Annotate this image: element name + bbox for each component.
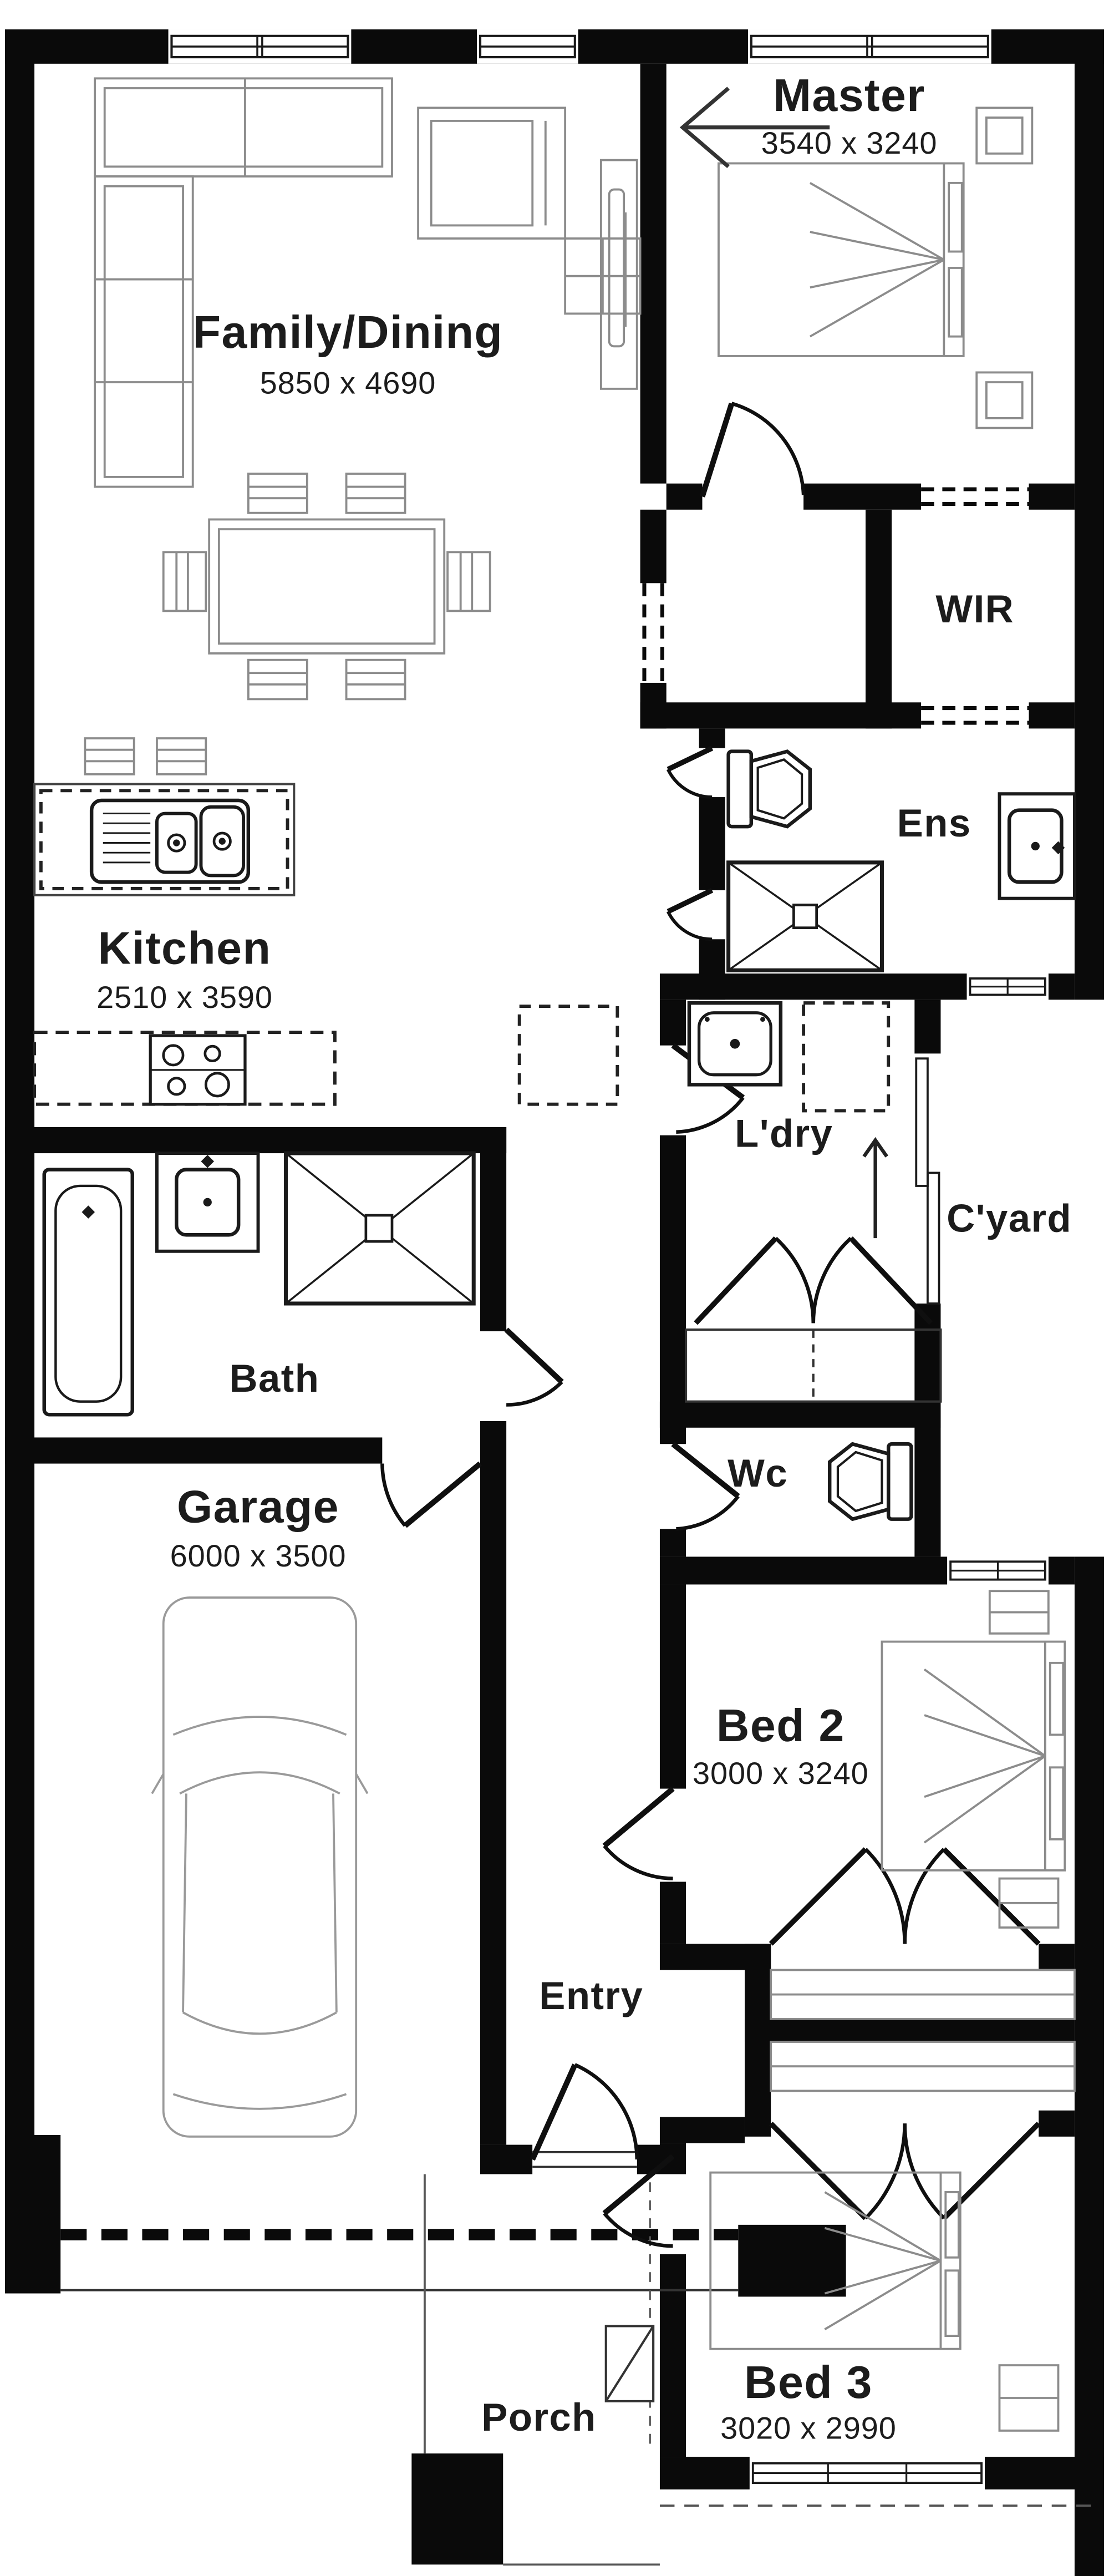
linen-cupboard xyxy=(686,1330,940,1402)
door-robe-bed2-left xyxy=(771,1849,904,1944)
side-table-icon xyxy=(565,239,640,313)
kitchen-island xyxy=(34,784,294,895)
room-label-bed2: Bed 2 xyxy=(716,1700,845,1751)
door-robe-bed2-right xyxy=(905,1849,1039,1944)
external-door-arrow xyxy=(864,1140,887,1238)
room-label-entry: Entry xyxy=(539,1974,643,2017)
room-dims-garage: 6000 x 3500 xyxy=(170,1538,347,1573)
ens-toilet-icon xyxy=(729,752,810,826)
room-label-porch: Porch xyxy=(481,2395,597,2439)
window-ens xyxy=(967,973,1049,1000)
kitchen-sink-icon xyxy=(91,800,248,882)
cooktop-icon xyxy=(150,1036,245,1104)
room-dims-family: 5850 x 4690 xyxy=(260,366,436,400)
door-ldry-cupboard-right xyxy=(813,1238,931,1323)
ens-shower-icon xyxy=(729,863,882,970)
room-label-ens: Ens xyxy=(897,801,971,845)
room-label-master: Master xyxy=(773,70,925,121)
room-label-family: Family/Dining xyxy=(193,307,503,358)
room-label-wir: WIR xyxy=(935,587,1014,631)
armchair-icon xyxy=(418,108,565,239)
floor-plan-page: Family/Dining 5850 x 4690 Master 3540 x … xyxy=(0,0,1109,2576)
door-robe-bed3-right xyxy=(905,2123,1039,2218)
room-dims-kitchen: 2510 x 3590 xyxy=(96,980,273,1015)
window-family-2 xyxy=(477,29,578,64)
front-door-threshold xyxy=(532,2145,637,2174)
stool-icons xyxy=(85,738,206,774)
ens-vanity-icon xyxy=(999,794,1074,898)
door-bed2 xyxy=(604,1789,673,1879)
sliding-door-cyard xyxy=(914,1053,940,1304)
door-bath xyxy=(506,1330,562,1404)
room-label-cyard: C'yard xyxy=(947,1196,1072,1240)
sofa-icon xyxy=(95,78,392,486)
room-label-bath: Bath xyxy=(230,1356,320,1400)
kitchen-bench xyxy=(34,1032,335,1104)
door-robe-bed3-left xyxy=(771,2123,904,2218)
room-label-garage: Garage xyxy=(177,1482,339,1533)
room-dims-master: 3540 x 3240 xyxy=(761,125,938,160)
room-dims-bed3: 3020 x 2990 xyxy=(720,2411,897,2446)
wc-toilet-icon xyxy=(830,1444,911,1519)
door-master xyxy=(703,403,804,496)
bathtub-icon xyxy=(44,1169,133,1414)
door-ldry-cupboard-left xyxy=(696,1238,813,1323)
window-family-1 xyxy=(169,29,352,64)
pantry-dashed xyxy=(520,1006,618,1104)
meter-box-icon xyxy=(606,2326,653,2401)
window-master xyxy=(748,29,991,64)
bath-vanity-icon xyxy=(157,1153,258,1251)
room-dims-bed2: 3000 x 3240 xyxy=(693,1756,869,1791)
laundry-appliance-dashed xyxy=(803,1003,888,1110)
dining-chairs xyxy=(164,474,490,699)
room-label-bed3: Bed 3 xyxy=(744,2357,873,2408)
tv-unit-icon xyxy=(601,160,637,389)
door-garage xyxy=(382,1464,480,1526)
floor-plan-drawing: Family/Dining 5850 x 4690 Master 3540 x … xyxy=(0,0,1109,2576)
dining-table-icon xyxy=(164,474,490,699)
window-bed3 xyxy=(750,2457,985,2489)
room-label-ldry: L'dry xyxy=(735,1111,833,1155)
laundry-trough-icon xyxy=(689,1003,781,1084)
door-hall-ens-1 xyxy=(668,748,713,797)
bath-shower-icon xyxy=(286,1153,474,1304)
room-label-wc: Wc xyxy=(728,1451,788,1495)
window-bed2 xyxy=(947,1556,1049,1584)
car-icon xyxy=(152,1598,368,2137)
room-label-kitchen: Kitchen xyxy=(98,922,272,973)
door-hall-ens-2 xyxy=(668,890,713,939)
